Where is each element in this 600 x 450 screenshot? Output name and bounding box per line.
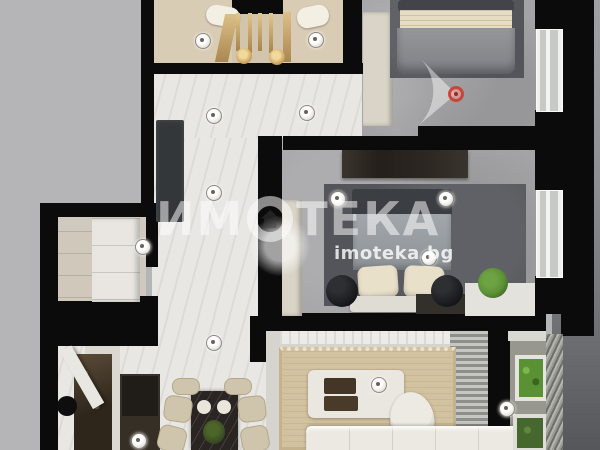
brass-bar-icon [258, 13, 262, 51]
balcony-sill [508, 331, 546, 341]
pouf-left [326, 275, 358, 307]
sofa [306, 426, 520, 450]
spotlight-marker-icon [195, 33, 211, 49]
dining-chair [237, 395, 268, 424]
privacy-screen [546, 334, 563, 450]
window-bedroom-2 [536, 190, 563, 278]
watermark-text-left: ИМ [156, 196, 244, 242]
stool-black [57, 396, 77, 416]
wall-outer-left [40, 203, 58, 450]
watermark-logo-o-icon [247, 196, 293, 242]
table-plant [203, 420, 225, 444]
wall-window-low [535, 276, 563, 314]
curtain-band [280, 331, 452, 344]
watermark-url: imoteka.bg [334, 243, 454, 264]
basin-gold-1 [236, 48, 252, 64]
tray-1 [324, 378, 356, 394]
wall-outer-right [561, 0, 594, 336]
wall-window-mid [535, 110, 563, 190]
tv-console [342, 150, 468, 178]
laundry-cabinet [58, 231, 92, 301]
wall-bathrooms-bottom [152, 63, 364, 74]
spotlight-marker-icon [499, 401, 515, 417]
bed-1-mattress [400, 10, 512, 30]
spotlight-marker-icon [299, 105, 315, 121]
planter-plant-2 [517, 418, 543, 448]
wall-bathroom2-right [343, 0, 362, 74]
dining-chair [224, 378, 252, 395]
wall-left-upper [141, 0, 154, 215]
spotlight-marker-icon [438, 191, 454, 207]
window-bedroom-1 [536, 29, 563, 112]
spotlight-marker-icon [131, 433, 147, 449]
wall-window-top [535, 0, 563, 29]
brass-bar-icon [248, 13, 252, 53]
dining-chair [239, 424, 271, 450]
spotlight-marker-icon [371, 377, 387, 393]
laundry-appliance [92, 218, 140, 302]
kitchen-hood [120, 374, 160, 420]
brass-bar-icon [269, 13, 273, 53]
house-icon [259, 208, 281, 230]
wardrobe-bedroom-1 [363, 12, 393, 126]
wall-dining-right [250, 316, 266, 362]
watermark-brand: ИМ ТЕКА [156, 196, 440, 242]
plant-bedroom-2 [478, 268, 508, 298]
watermark-text-right: ТЕКА [296, 196, 440, 242]
spotlight-marker-icon [308, 32, 324, 48]
spotlight-marker-icon [135, 239, 151, 255]
spotlight-marker-icon [206, 335, 222, 351]
bed-2-pillow-left [357, 265, 399, 300]
brass-bar-icon [236, 13, 240, 51]
floorplan-render: ИМ ТЕКА imoteka.bg [0, 0, 600, 450]
plate-1 [197, 400, 211, 414]
dining-chair [172, 378, 200, 395]
plate-2 [217, 400, 231, 414]
pouf-right [431, 275, 463, 307]
dining-chair [162, 394, 193, 424]
tray-2 [324, 396, 358, 411]
motion-sensor-icon [448, 86, 464, 102]
wall-laundry-bottom [58, 296, 158, 346]
planter-plant-1 [519, 359, 543, 397]
spotlight-marker-icon [206, 108, 222, 124]
basin-gold-2 [269, 49, 285, 65]
